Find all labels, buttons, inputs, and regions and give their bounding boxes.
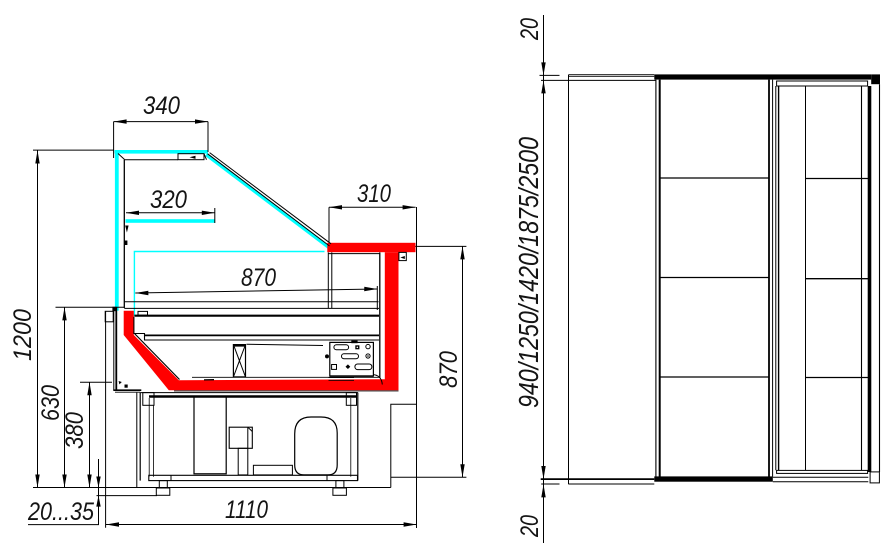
svg-text:1200: 1200 [9,309,37,361]
svg-text:870: 870 [241,264,276,292]
svg-text:20: 20 [516,18,544,41]
svg-text:310: 310 [357,180,391,208]
svg-text:380: 380 [61,412,89,449]
svg-text:940/1250/1420/1875/2500: 940/1250/1420/1875/2500 [513,137,544,408]
svg-text:20: 20 [516,515,544,538]
svg-text:320: 320 [150,186,187,214]
svg-text:20...35: 20...35 [27,498,94,526]
svg-text:340: 340 [143,92,180,120]
svg-text:1110: 1110 [225,496,268,524]
svg-text:870: 870 [435,351,463,388]
